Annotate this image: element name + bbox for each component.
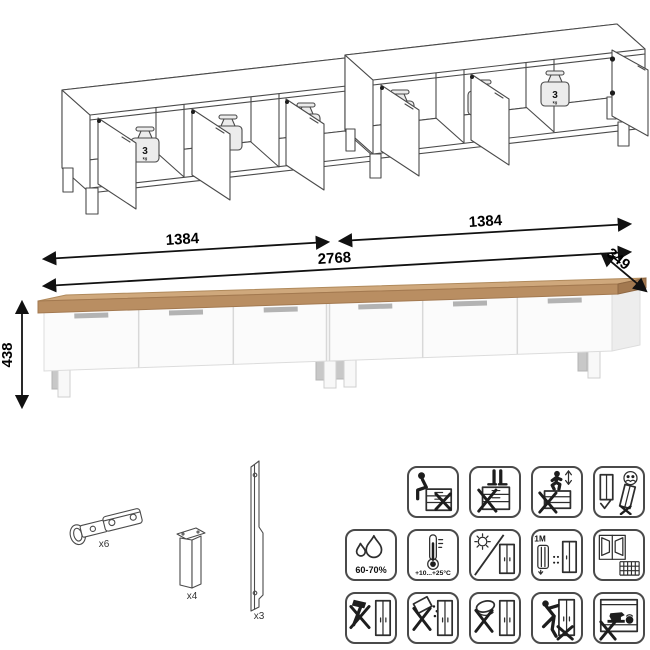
prohibition-cross-icon — [479, 490, 496, 511]
dim-label-left-width: 1384 — [165, 230, 200, 249]
radiator-icon — [538, 545, 549, 568]
hinge-part: x6 — [68, 508, 144, 550]
dimension-drawing: 1384 1384 2768 349 438 — [0, 212, 646, 407]
sun-icon — [478, 537, 487, 546]
iso-leg — [346, 129, 355, 151]
tv-stand-render — [38, 278, 646, 397]
icon-no-overloading — [593, 592, 645, 644]
two-people-badge-icon — [624, 472, 637, 485]
hardware-parts: x6 x4 x3 — [68, 461, 265, 622]
dim-label-depth: 349 — [603, 245, 633, 274]
iso-leg — [370, 154, 381, 178]
iso-right-unit — [345, 24, 648, 178]
iso-leg — [618, 122, 629, 146]
leg-part: x4 — [177, 528, 205, 602]
front-leg — [344, 360, 356, 387]
prohibition-cross-icon — [476, 610, 492, 631]
hinge-mark — [610, 56, 615, 61]
distance-label: ≥1M — [534, 535, 546, 544]
prohibition-cross-icon — [558, 627, 572, 639]
back-leg — [578, 350, 587, 371]
iso-left-unit — [62, 58, 373, 214]
icon-temperature-range: +10...+25°C — [407, 529, 459, 581]
icon-no-abrasive-cleaners — [469, 592, 521, 644]
icon-carry-with-two-people — [593, 466, 645, 518]
leg-count-label: x4 — [187, 591, 198, 602]
icon-ventilated-room — [593, 529, 645, 581]
icon-no-dragging — [531, 592, 583, 644]
instruction-sheet: 3 kg — [0, 0, 650, 650]
front-leg — [588, 351, 600, 378]
hinge-count-label: x6 — [99, 539, 110, 550]
dim-label-total-width: 2768 — [317, 249, 351, 268]
front-leg — [58, 370, 70, 397]
radiator-grid-icon — [620, 562, 639, 575]
check-mark-icon — [601, 501, 611, 509]
hinge-mark — [610, 90, 615, 95]
iso-leg — [63, 168, 73, 192]
dim-label-right-width: 1384 — [468, 212, 503, 231]
water-drop-icon — [357, 544, 366, 556]
humidity-label: 60-70% — [355, 565, 386, 575]
dim-label-height: 438 — [0, 342, 16, 367]
kettlebell-icon — [626, 616, 634, 624]
icon-no-impact-tools — [345, 592, 397, 644]
iso-leg — [86, 188, 98, 214]
icon-no-jumping — [531, 466, 583, 518]
connector-strip-part: x3 — [251, 461, 265, 622]
front-leg — [324, 361, 336, 388]
cabinet-side — [612, 287, 640, 351]
icon-min-1m-from-heat: ≥1M — [531, 529, 583, 581]
person-icon — [418, 472, 425, 479]
care-icons-grid: 60-70% +10...+25°C ≥1M — [345, 466, 645, 644]
temperature-label: +10...+25°C — [415, 569, 451, 577]
icon-avoid-direct-sunlight — [469, 529, 521, 581]
legs-icon — [494, 471, 501, 483]
icon-no-standing — [469, 466, 521, 518]
up-down-arrow-icon — [566, 471, 572, 484]
icon-humidity-range: 60-70% — [345, 529, 397, 581]
water-drop-icon — [366, 536, 381, 558]
isometric-cabinet-drawing — [62, 24, 648, 214]
strip-count-label: x3 — [254, 611, 265, 622]
icon-no-sitting — [407, 466, 459, 518]
icon-no-spilling-liquids — [407, 592, 459, 644]
